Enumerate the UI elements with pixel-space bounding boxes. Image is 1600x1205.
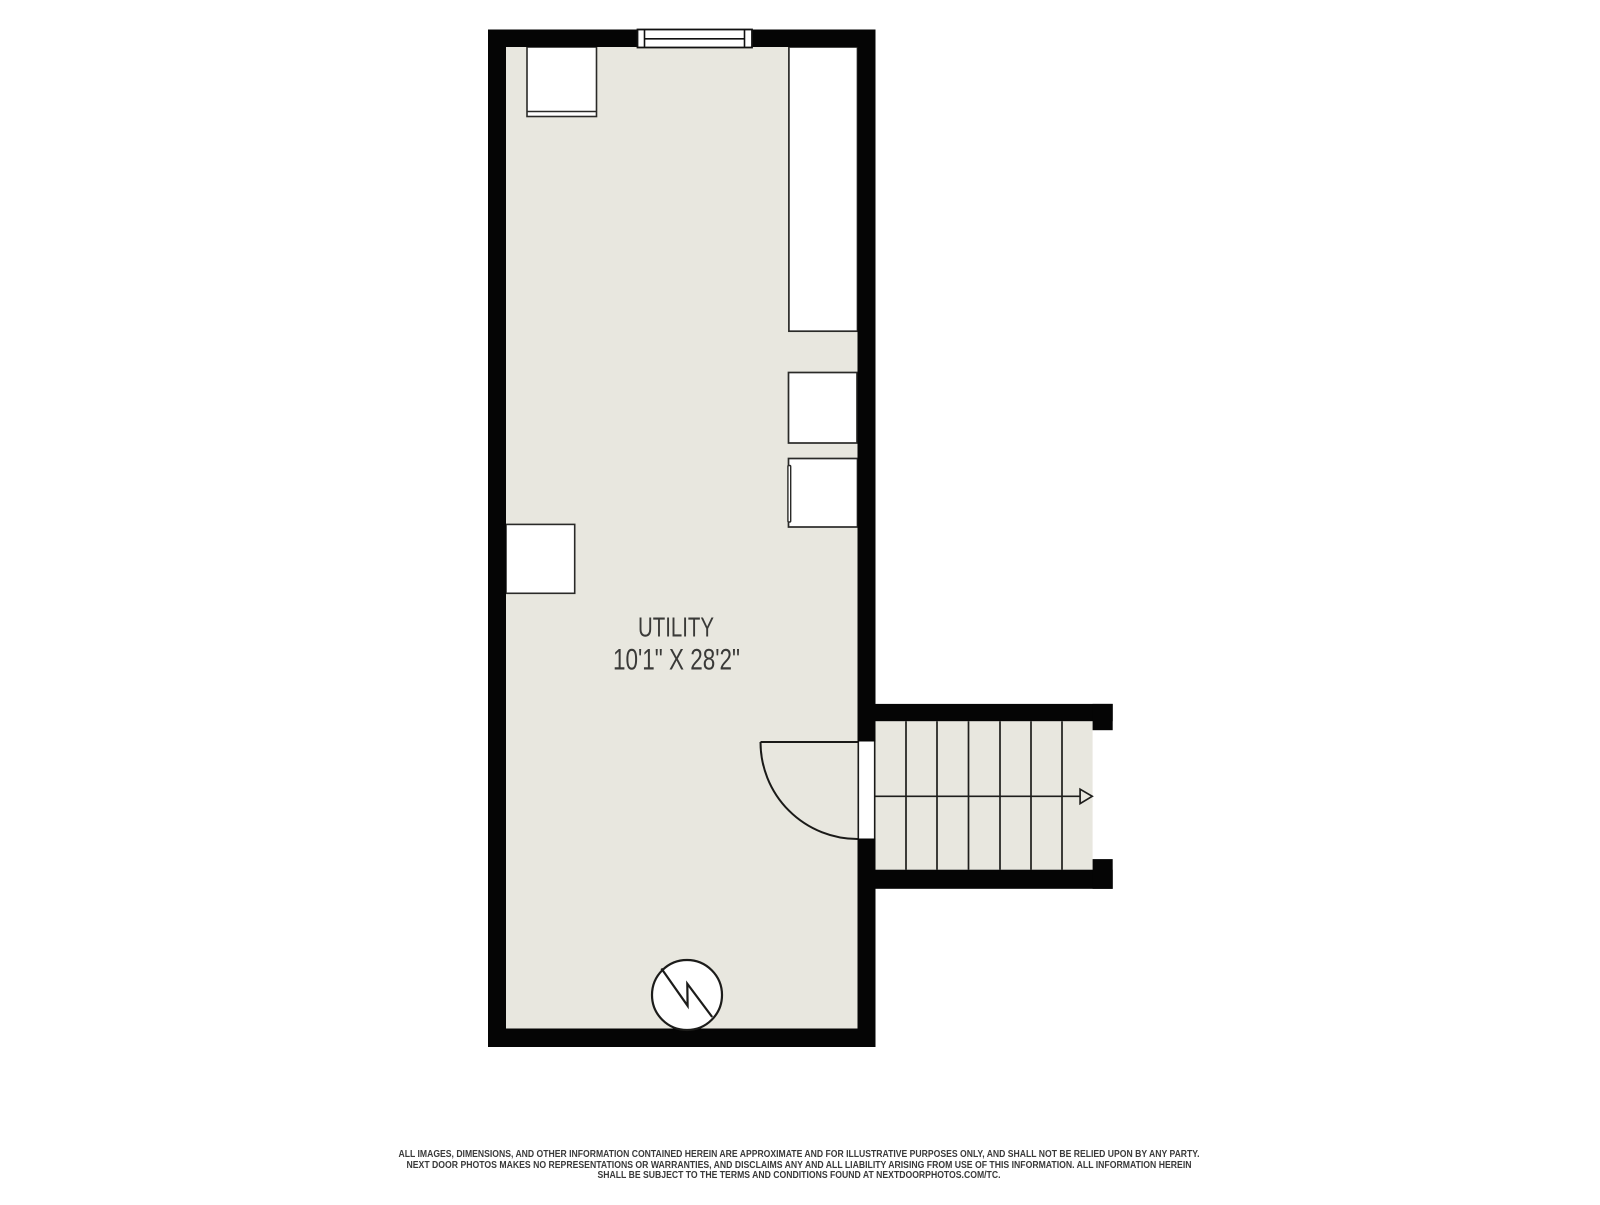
svg-text:ALL IMAGES, DIMENSIONS, AND OT: ALL IMAGES, DIMENSIONS, AND OTHER INFORM… <box>399 1149 1200 1160</box>
svg-text:10'1" X 28'2": 10'1" X 28'2" <box>613 644 740 677</box>
svg-text:UTILITY: UTILITY <box>638 612 714 643</box>
svg-text:SHALL BE SUBJECT TO THE TERMS: SHALL BE SUBJECT TO THE TERMS AND CONDIT… <box>598 1170 1001 1181</box>
